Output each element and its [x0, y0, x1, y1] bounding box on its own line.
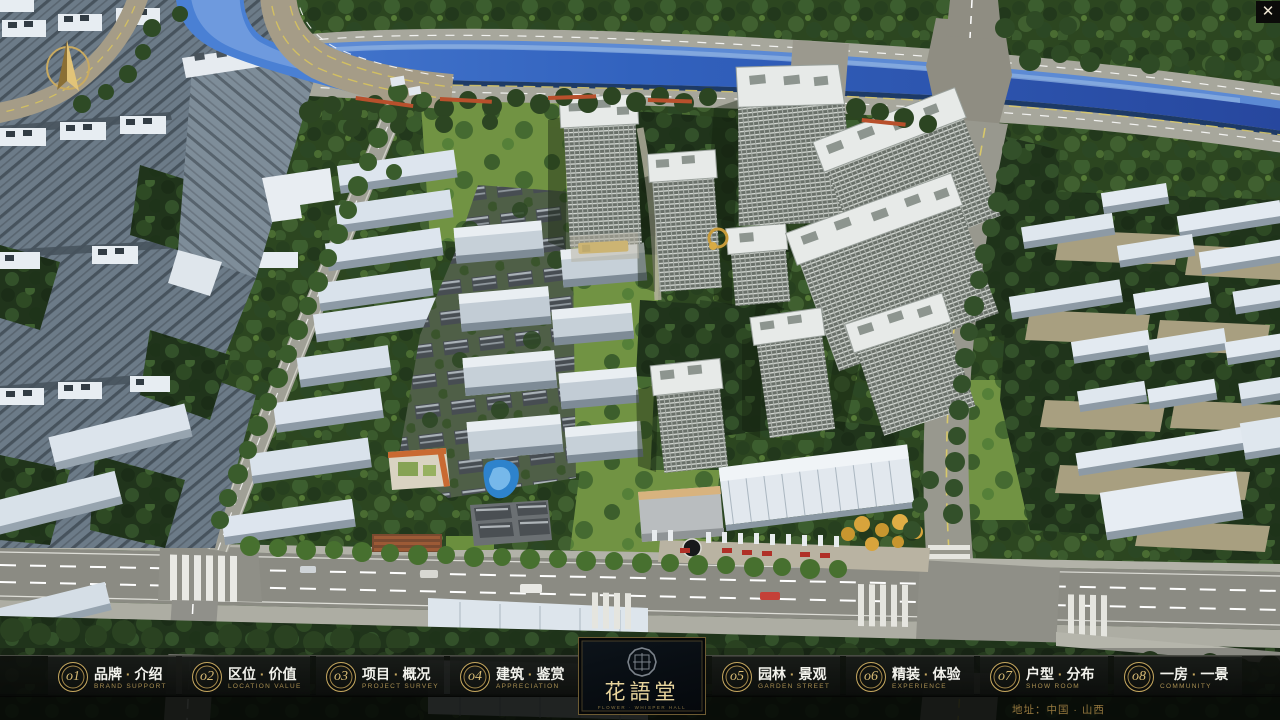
svg-text:花語堂: 花語堂	[605, 680, 680, 704]
svg-text:FLOWER · WHISPER HALL: FLOWER · WHISPER HALL	[598, 705, 686, 710]
